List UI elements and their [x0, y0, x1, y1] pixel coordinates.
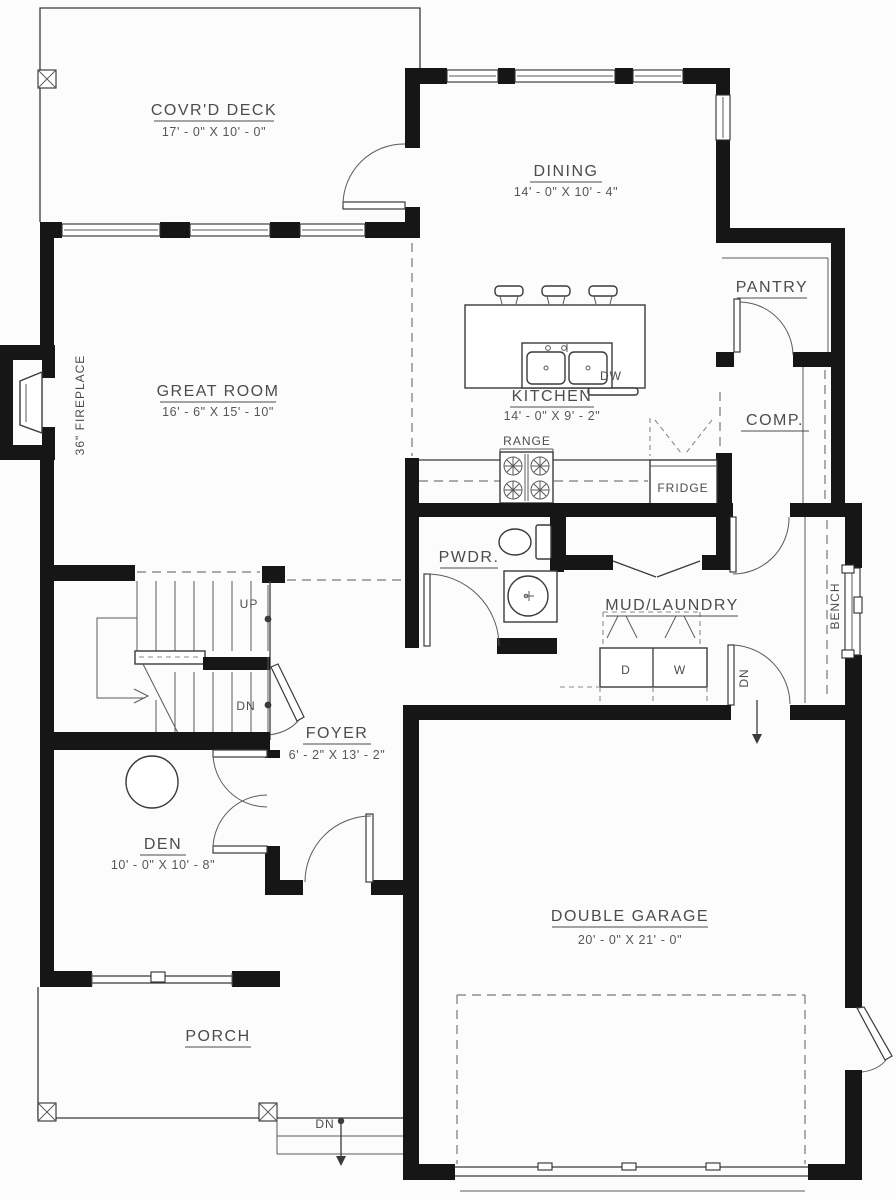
bifold-closet-doors — [613, 561, 700, 577]
den-french-doors — [213, 750, 267, 853]
comp-door — [730, 517, 789, 574]
porch-post — [38, 1103, 56, 1121]
dining-label: DINING — [534, 163, 599, 180]
comp-label: COMP. — [746, 412, 804, 429]
pantry-label: PANTRY — [736, 279, 808, 296]
pantry-door — [734, 299, 793, 355]
fireplace — [0, 345, 55, 460]
porch-label: PORCH — [185, 1028, 250, 1045]
den-table — [126, 756, 178, 808]
range — [500, 449, 553, 503]
fireplace-label: 36" FIREPLACE — [73, 355, 87, 456]
bar-stool — [495, 286, 617, 304]
deck-door — [343, 144, 405, 209]
den-label: DEN — [144, 836, 182, 853]
stairs-dn-label: DN — [236, 699, 255, 713]
porch-steps — [277, 1118, 403, 1166]
dryer-label: D — [621, 663, 631, 677]
pwdr-door — [424, 574, 499, 646]
great-room-label: GREAT ROOM — [157, 383, 280, 400]
window — [716, 95, 730, 140]
stairs-up-label: UP — [240, 597, 259, 611]
range-label: RANGE — [503, 434, 551, 448]
garage-side-door — [857, 1007, 892, 1072]
pwdr-sink — [504, 571, 557, 622]
closet-rod — [603, 612, 700, 650]
washer-dryer — [560, 648, 707, 706]
floor-plan: DINING 14' - 0" X 10' - 4" COVR'D DECK 1… — [0, 0, 896, 1200]
foyer — [268, 814, 419, 895]
bench-label: BENCH — [828, 582, 842, 629]
pwdr-room — [405, 503, 564, 654]
dishwasher-label: DW — [600, 369, 622, 383]
dining-dims: 14' - 0" X 10' - 4" — [514, 185, 618, 199]
kitchen-label: KITCHEN — [512, 388, 593, 405]
fridge-label: FRIDGE — [657, 481, 708, 495]
pantry-walls — [716, 228, 845, 517]
garage-label: DOUBLE GARAGE — [551, 908, 709, 925]
bench-window — [842, 565, 862, 658]
deck-dims: 17' - 0" X 10' - 0" — [162, 125, 266, 139]
garage — [403, 517, 892, 1191]
kitchen-sink — [522, 343, 612, 388]
window — [447, 70, 683, 82]
washer-label: W — [674, 663, 686, 677]
front-door — [305, 814, 373, 882]
toilet — [499, 525, 551, 559]
deck-label: COVR'D DECK — [151, 102, 277, 119]
kitchen-dims: 14' - 0" X 9' - 2" — [504, 409, 601, 423]
stair-treads-upper — [137, 581, 251, 651]
den-dims: 10' - 0" X 10' - 8" — [111, 858, 215, 872]
porch-dn-label: DN — [315, 1117, 334, 1131]
mud-laundry-label: MUD/LAUNDRY — [605, 597, 739, 614]
garage-door — [455, 1163, 808, 1191]
dining-walls — [343, 68, 730, 243]
garage-dims: 20' - 0" X 21' - 0" — [578, 933, 682, 947]
deck-wall — [40, 222, 420, 238]
foyer-label: FOYER — [306, 725, 369, 742]
window — [62, 224, 365, 236]
understair-door — [268, 664, 304, 735]
comp-area — [716, 367, 825, 503]
pwdr-label: PWDR. — [439, 549, 500, 566]
deck-post — [38, 70, 56, 88]
garage-clearance — [457, 995, 805, 1164]
great-room-walls — [40, 222, 419, 987]
den-window — [92, 972, 232, 986]
stairs — [48, 565, 404, 740]
garage-dn-label: DN — [737, 668, 751, 687]
foyer-dims: 6' - 2" X 13' - 2" — [289, 748, 386, 762]
garage-entry-door — [728, 645, 790, 744]
great-room-dims: 16' - 6" X 15' - 10" — [162, 405, 274, 419]
porch — [38, 987, 403, 1166]
bench — [805, 517, 827, 703]
floor-plan-drawing: DINING 14' - 0" X 10' - 4" COVR'D DECK 1… — [0, 0, 896, 1200]
porch-post — [259, 1103, 277, 1121]
